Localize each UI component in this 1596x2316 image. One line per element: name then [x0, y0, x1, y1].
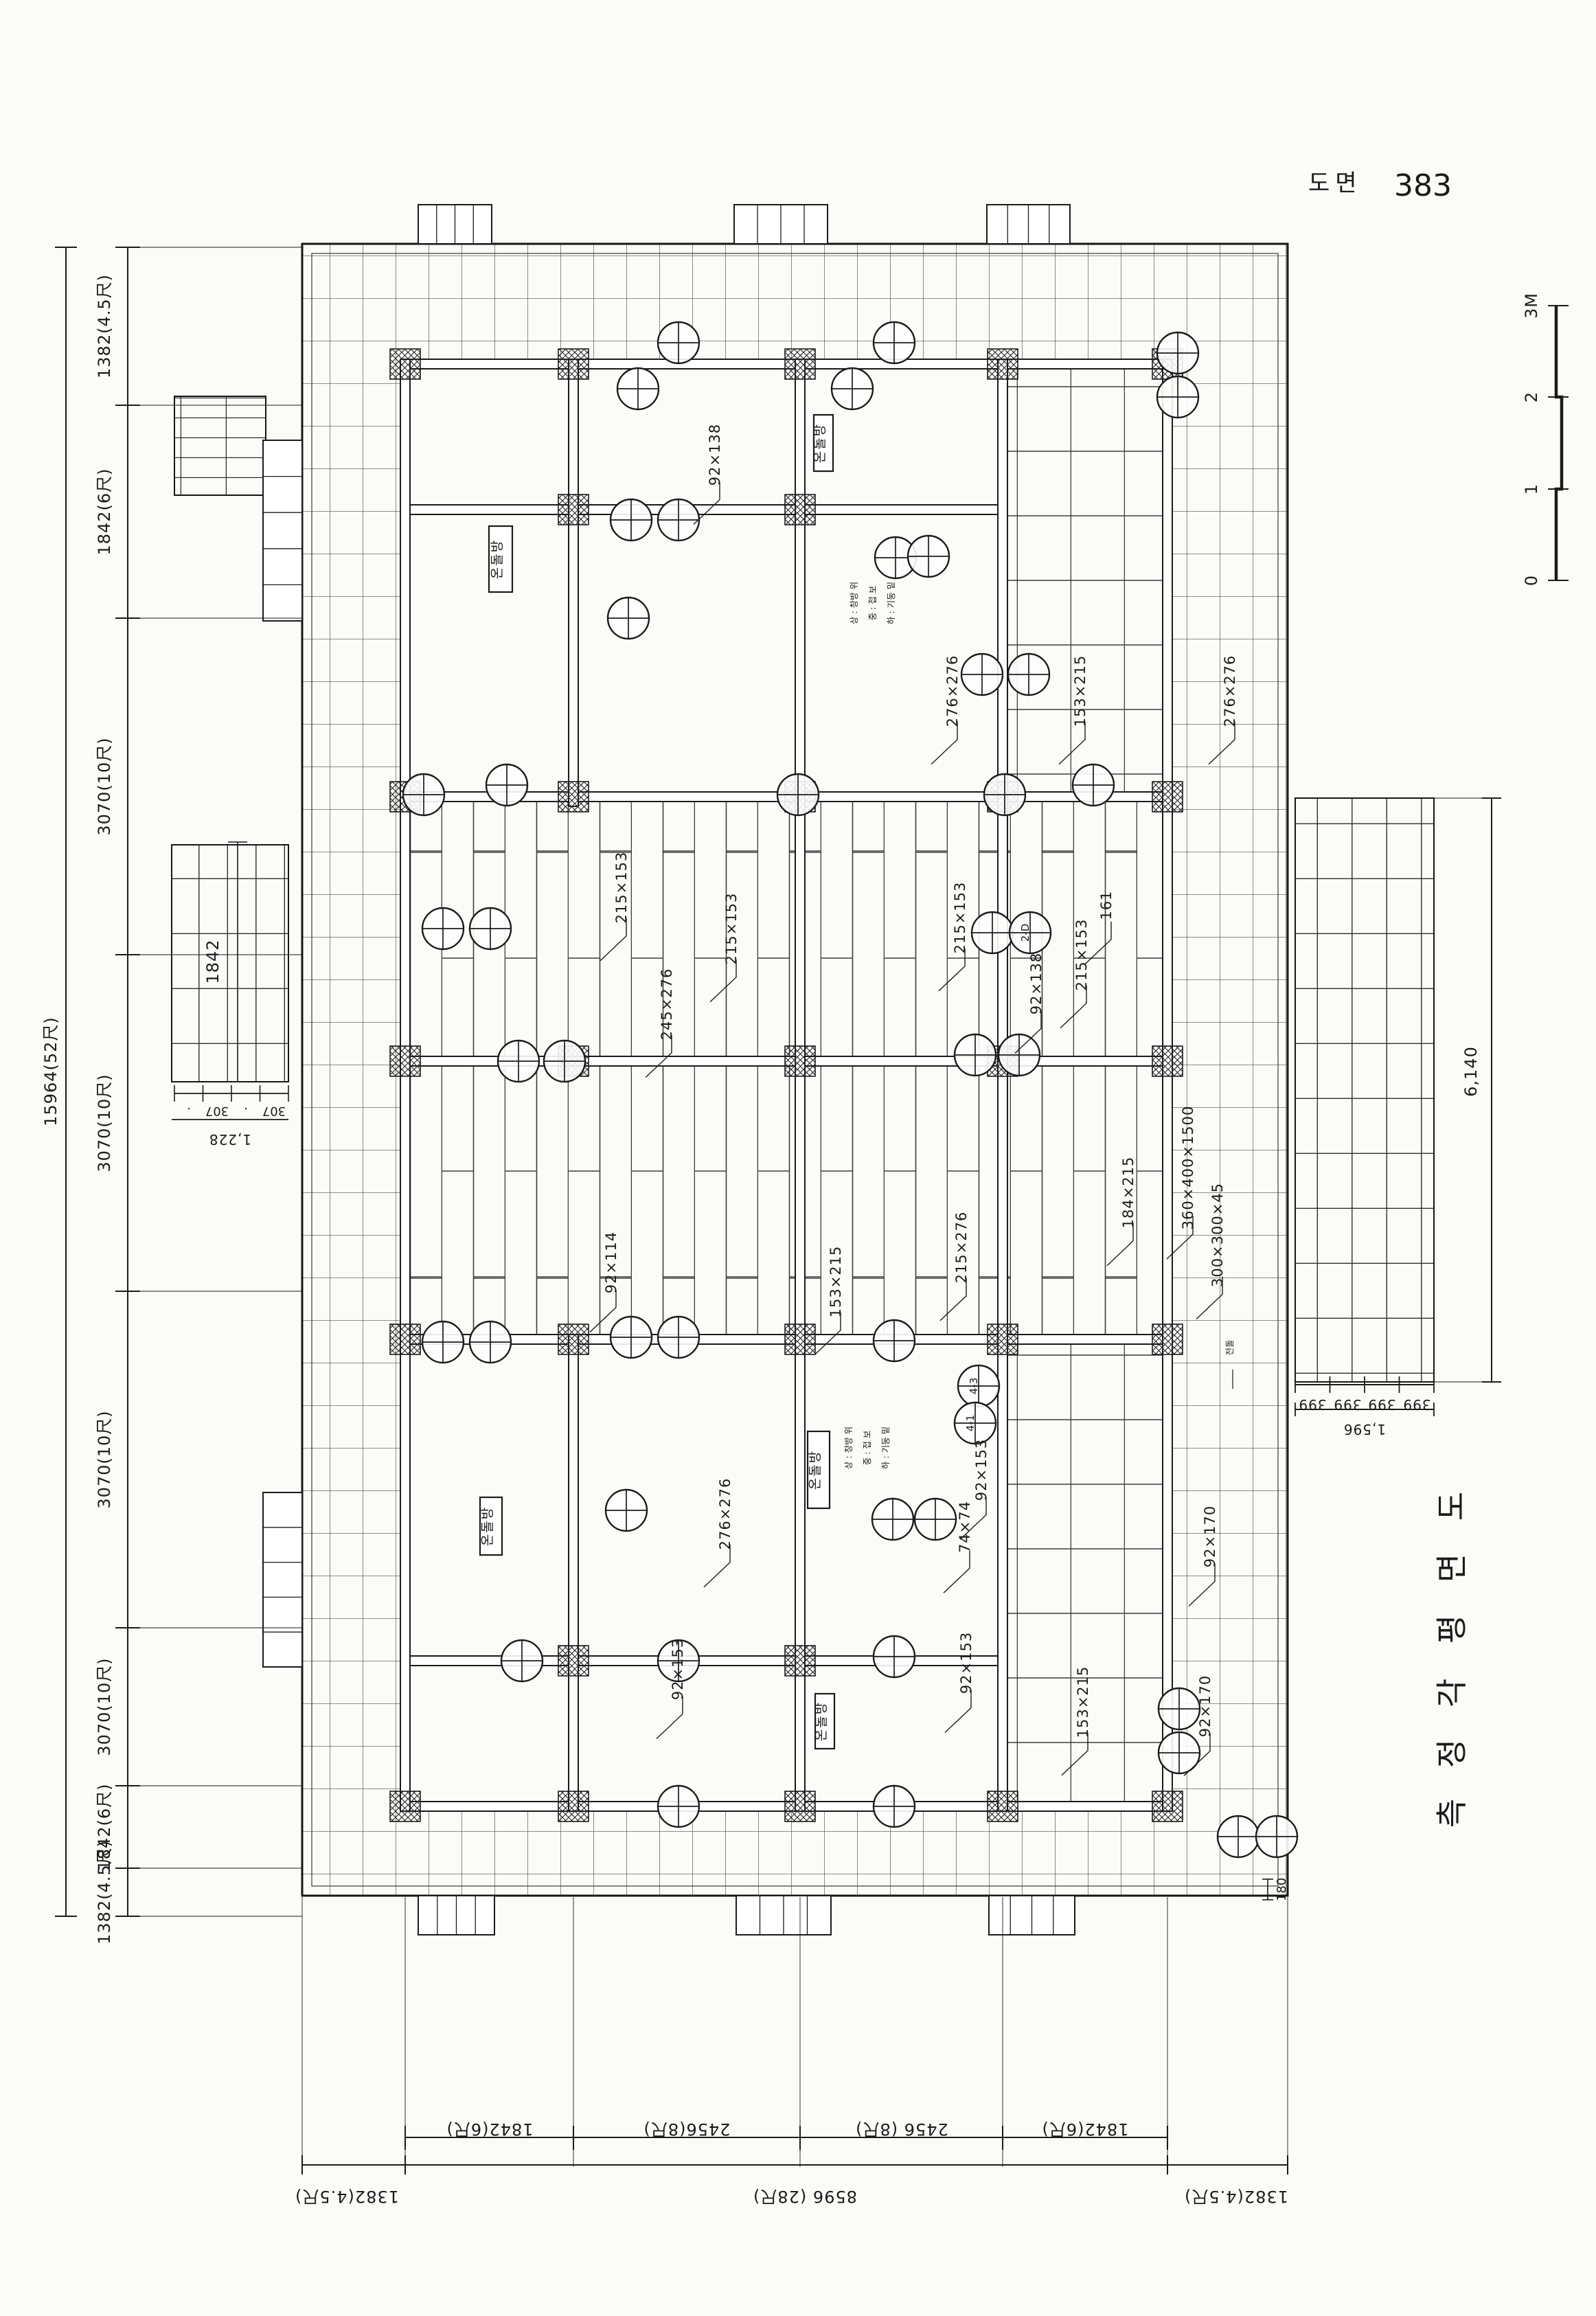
eave-board-dimension: 180: [1275, 1878, 1289, 1901]
member-dimension: 276×276: [1222, 655, 1238, 727]
bottom-dimension-label: 1842(6尺): [446, 2120, 533, 2139]
column-base-post: [988, 1791, 1018, 1821]
room-label: 온돌방: [812, 423, 828, 463]
column-base-post: [785, 1046, 815, 1076]
column-base-post: [558, 349, 589, 379]
column-base-post: [785, 1646, 815, 1676]
sheet-number-label: 도면: [1308, 170, 1363, 197]
column-base-post: [390, 349, 420, 379]
column-base-post: [988, 349, 1018, 379]
handwritten-note-line: 중 : 접 보: [867, 586, 878, 621]
member-dimension: 161: [1098, 890, 1115, 920]
separator-dot: ·: [187, 1101, 191, 1115]
bottom-eave-left-dimension: 1382(4.5尺): [295, 2187, 399, 2206]
stair-block: [263, 440, 302, 621]
member-dimension: 300×300×45: [1209, 1183, 1226, 1287]
column-bubble-label: 4-1: [964, 1415, 977, 1432]
left-dimension-label: 3070(10尺): [95, 1657, 114, 1756]
member-dimension: 276×276: [717, 1478, 733, 1550]
column-base-post: [390, 1791, 420, 1821]
member-dimension: 92×153: [670, 1638, 686, 1700]
tiny-note: 전돌: [1224, 1339, 1235, 1355]
beam: [400, 505, 1007, 514]
beam: [400, 1656, 1007, 1666]
right-porch-depth-dimension: 6,140: [1461, 1046, 1481, 1097]
sheet-number: 383: [1394, 168, 1452, 203]
right-plank-width-label: 399: [1333, 1396, 1361, 1413]
stair-block: [263, 1492, 302, 1667]
member-dimension: 184×215: [1120, 1157, 1137, 1229]
beam: [795, 359, 805, 1811]
member-dimension: 74×74: [957, 1501, 973, 1553]
left-cluster-height-dimension: 1842: [203, 939, 223, 984]
drawing-title-char: 측: [1433, 1799, 1470, 1828]
bottom-eave-right-dimension: 1382(4.5尺): [1184, 2187, 1288, 2206]
column-base-post: [390, 1324, 420, 1354]
column-base-post: [1152, 1791, 1183, 1821]
bottom-dimension-label: 2456(8尺): [643, 2120, 730, 2139]
scale-bar-label: 2: [1522, 391, 1541, 402]
member-dimension: 92×138: [1028, 953, 1045, 1014]
column-base-post: [390, 1046, 420, 1076]
member-dimension: 92×153: [958, 1632, 974, 1694]
column-base-post: [785, 1791, 815, 1821]
member-dimension: 215×153: [613, 852, 630, 924]
room-label: 온돌방: [814, 1701, 829, 1741]
drawing-title-char: 각: [1433, 1679, 1470, 1707]
handwritten-note-line: 중 : 접 보: [862, 1431, 872, 1466]
column-base-post: [1152, 782, 1183, 812]
right-plank-width-label: 399: [1367, 1396, 1395, 1413]
room-label: 온돌방: [808, 1450, 823, 1490]
drawing-title-char: 정: [1433, 1739, 1470, 1768]
member-dimension: 215×153: [952, 882, 968, 954]
column-base-post: [558, 1324, 589, 1354]
right-plank-width-label: 399: [1402, 1396, 1430, 1413]
scale-bar: [1556, 306, 1562, 580]
left-dimension-label: 1842(6尺): [95, 468, 114, 555]
bottom-dimension-label: 2456 (8尺): [855, 2120, 948, 2139]
column-base-post: [1152, 1324, 1183, 1354]
room-label: 온돌방: [480, 1506, 495, 1546]
column-bubble-label: 4-3: [968, 1378, 980, 1395]
bottom-dimension-label: 1842(6尺): [1041, 2120, 1128, 2139]
left-dimension-label: 1382(4.5尺): [95, 274, 114, 378]
left-dimension-label: 3070(10尺): [95, 1074, 114, 1172]
left-dimension-label: 3070(10尺): [95, 1410, 114, 1508]
room-label: 온돌방: [490, 539, 505, 579]
left-plank-width-label: 307: [262, 1104, 286, 1118]
right-plank-total-dimension: 1,596: [1343, 1421, 1386, 1438]
member-dimension: 215×153: [723, 893, 740, 965]
plank-deck-left: [172, 845, 288, 1082]
handwritten-note-line: 상 : 창방 위: [849, 582, 859, 624]
beam: [998, 359, 1007, 1811]
column-bubble-label: 2-D: [1019, 924, 1031, 942]
column-base-post: [785, 1324, 815, 1354]
column-base-post: [558, 1791, 589, 1821]
handwritten-note-line: 하 : 기둥 밑: [880, 1427, 891, 1469]
scale-bar-label: 3M: [1522, 293, 1541, 319]
member-dimension: 245×276: [659, 968, 675, 1041]
drawing-title-char: 도: [1433, 1492, 1470, 1521]
member-dimension: 92×138: [707, 424, 723, 486]
beam: [569, 359, 578, 806]
column-base-post: [785, 349, 815, 379]
floor-plan-sheet: 2-D4-34-192×138276×276153×215276×276215×…: [0, 0, 1596, 2316]
plank-deck-top-left: [174, 396, 266, 495]
beam: [400, 359, 410, 1811]
column-base-post: [1152, 1046, 1183, 1076]
handwritten-note-line: 하 : 기둥 밑: [886, 582, 896, 624]
member-dimension: 215×276: [953, 1212, 970, 1284]
column-base-post: [558, 1646, 589, 1676]
plank-deck-right: [1295, 798, 1434, 1382]
column-base-post: [785, 495, 815, 525]
member-dimension: 360×400×1500: [1180, 1106, 1196, 1230]
member-dimension: 92×170: [1197, 1675, 1213, 1737]
left-dimension-label: 3070(10尺): [95, 737, 114, 835]
scale-bar-label: 0: [1522, 575, 1541, 586]
bottom-overall-dimension: 8596 (28尺): [753, 2187, 857, 2206]
member-dimension: 153×215: [1072, 655, 1088, 727]
left-dimension-label: 1382(4.5尺): [95, 1840, 114, 1944]
member-dimension: 92×170: [1202, 1506, 1218, 1567]
member-dimension: 92×114: [603, 1231, 619, 1293]
right-plank-width-label: 399: [1298, 1396, 1326, 1413]
scale-bar-label: 1: [1522, 484, 1541, 495]
drawing-title-char: 면: [1433, 1554, 1470, 1582]
member-dimension: 153×215: [828, 1246, 844, 1318]
column-base-post: [558, 495, 589, 525]
member-dimension: 215×153: [1073, 919, 1090, 991]
column-base-post: [558, 782, 589, 812]
member-dimension: 276×276: [944, 655, 961, 727]
left-plank-width-label: 307: [205, 1104, 229, 1118]
left-cluster-total-dimension: 1,228: [209, 1131, 251, 1148]
member-dimension: 92×153: [973, 1439, 990, 1501]
member-dimension: 153×215: [1075, 1666, 1091, 1738]
column-base-post: [988, 1324, 1018, 1354]
separator-dot: ·: [244, 1101, 248, 1115]
drawing-title-char: 평: [1433, 1615, 1470, 1644]
beam: [569, 1335, 578, 1811]
left-overall-dimension: 15964(52尺): [41, 1017, 60, 1126]
handwritten-note-line: 상 : 창방 위: [843, 1427, 854, 1469]
beam: [1163, 359, 1172, 1811]
